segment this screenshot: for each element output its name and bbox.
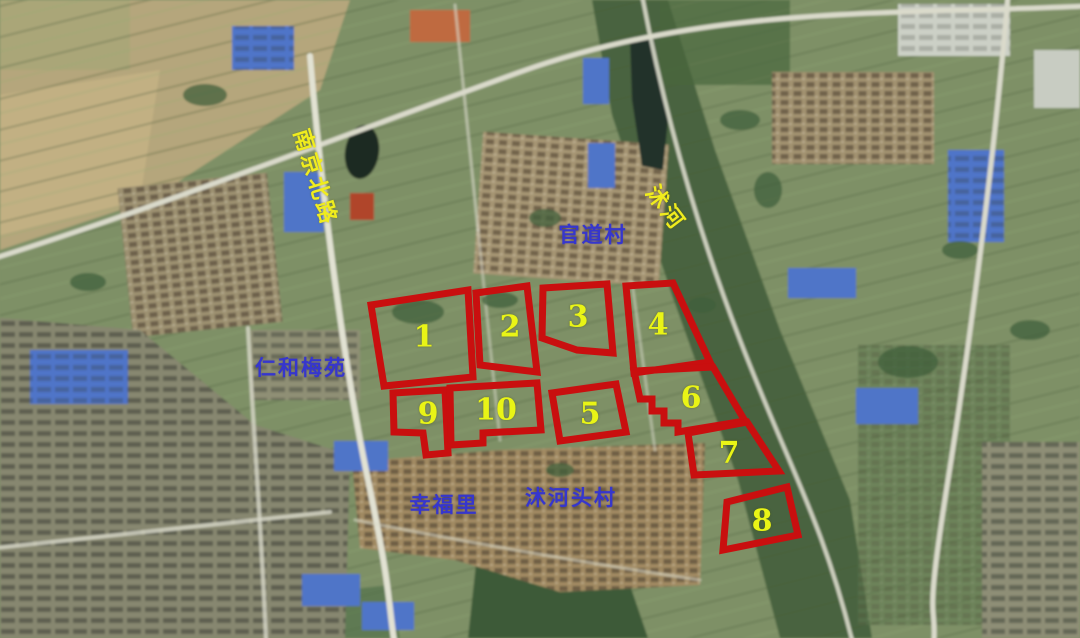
parcel-outline-1[interactable] (371, 290, 473, 386)
parcel-outline-9[interactable] (393, 390, 448, 455)
parcel-outline-3[interactable] (542, 284, 613, 353)
parcel-outline-8[interactable] (723, 487, 798, 550)
parcel-outline-2[interactable] (476, 286, 537, 372)
parcel-outline-7[interactable] (688, 422, 779, 475)
parcel-outline-4[interactable] (626, 283, 710, 373)
parcel-outline-10[interactable] (450, 383, 541, 445)
parcel-outline-5[interactable] (552, 384, 626, 441)
map-canvas: 南京北路 沭河 官道村 仁和梅苑 幸福里 沭河头村 1 2 3 4 5 6 7 … (0, 0, 1080, 638)
parcel-overlay (0, 0, 1080, 638)
